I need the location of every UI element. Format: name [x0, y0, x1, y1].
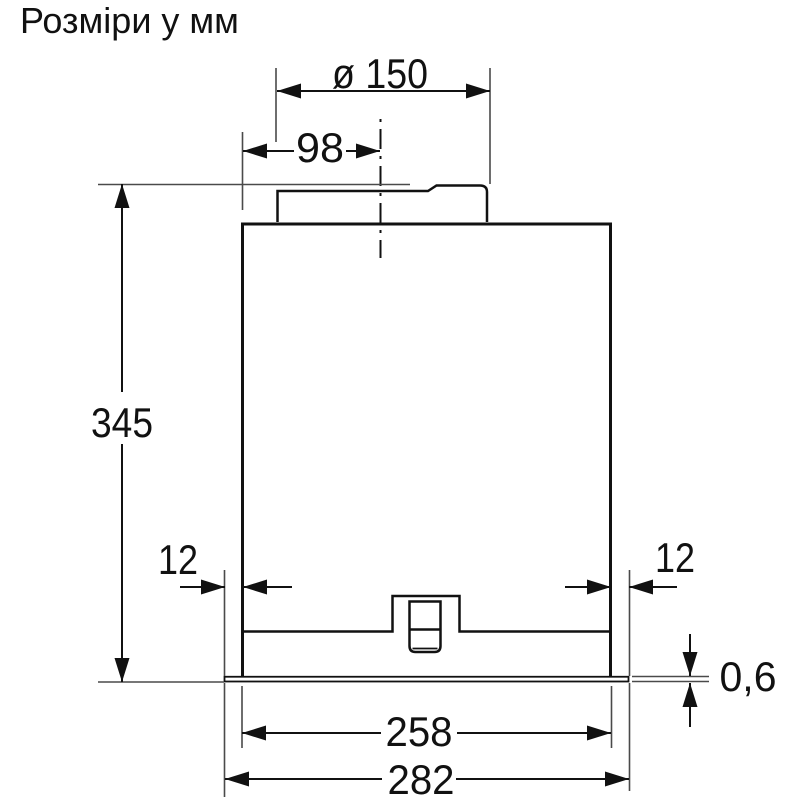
arrowhead-right [605, 772, 629, 787]
dim-duct-offset-label: 98 [296, 124, 344, 171]
arrowhead-right [466, 84, 490, 99]
arrowhead-left [277, 84, 301, 99]
dim-flange-right-label: 12 [655, 534, 695, 581]
dim-duct-offset: 98 [243, 124, 380, 171]
arrowhead-right [587, 726, 611, 741]
dim-height-label: 345 [91, 399, 153, 446]
dim-inner-width-label: 258 [386, 708, 453, 755]
dim-duct-diameter: ø 150 [277, 50, 490, 99]
plate-thickness-ext [632, 677, 709, 682]
arrowhead-right [356, 144, 380, 159]
dim-duct-diameter-label: ø 150 [332, 50, 428, 97]
hood-body-fill [241, 222, 612, 677]
arrowhead-down [683, 652, 698, 676]
dimension-diagram: Розміри у мм [0, 0, 800, 800]
arrowhead-left [243, 144, 267, 159]
hood-structure [225, 186, 629, 682]
dim-height: 345 [91, 184, 153, 682]
dim-inner-width: 258 [242, 708, 611, 755]
dim-overall-width-label: 282 [388, 756, 455, 800]
technical-drawing: ø 150 98 345 12 12 [0, 0, 800, 800]
arrowhead-right [201, 580, 225, 595]
arrowhead-up [115, 184, 130, 208]
arrowhead-up [683, 683, 698, 707]
arrowhead-down [115, 658, 130, 682]
dim-plate-thickness: 0,6 [683, 634, 777, 727]
dim-overall-width: 282 [225, 756, 629, 800]
arrowhead-left [225, 772, 249, 787]
bottom-plate [225, 677, 629, 682]
dim-plate-thickness-label: 0,6 [720, 653, 777, 700]
arrowhead-left [242, 726, 266, 741]
dim-flange-left-label: 12 [158, 536, 198, 583]
arrowhead-left [629, 580, 653, 595]
